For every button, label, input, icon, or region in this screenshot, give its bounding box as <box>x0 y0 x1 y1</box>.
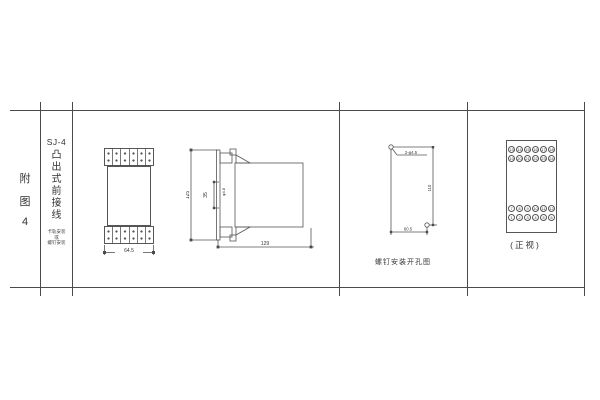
terminal-cell <box>121 227 129 243</box>
type-char: 前 <box>52 186 62 198</box>
drill-width-dim-label: 60.5 <box>404 227 413 232</box>
side-rail-dim-label: 35 <box>203 192 209 198</box>
terminal-number: 11 <box>540 205 547 212</box>
terminal-number: 2 <box>516 214 523 221</box>
model-label: SJ-4 <box>47 137 66 147</box>
drill-diagram-caption: 螺钉安装开孔图 <box>339 257 467 267</box>
terminal-number: 7 <box>508 205 515 212</box>
terminal-number: 22 <box>532 155 539 162</box>
mounting-hole-top-left <box>389 145 393 149</box>
appendix-char: 图 <box>20 193 31 209</box>
drawing-sheet: 附 图 4 SJ-4 凸 出 式 前 接 线 卡轨安装 或 螺钉安装 64.5 <box>0 0 600 400</box>
front-view-terminal-strip-bottom <box>104 226 154 244</box>
dimension-end <box>152 251 155 254</box>
terminal-cell <box>105 149 113 165</box>
terminal-number: 5 <box>540 214 547 221</box>
terminal-number: 13 <box>508 146 515 153</box>
terminal-number: 24 <box>548 155 555 162</box>
terminal-cell <box>130 227 138 243</box>
terminal-number: 20 <box>516 155 523 162</box>
type-char: 凸 <box>52 150 62 162</box>
terminal-cell <box>138 149 146 165</box>
terminal-row: 123456 <box>507 214 556 221</box>
table-rule-top <box>10 110 585 111</box>
side-hole-dim-label: φ4.8 <box>221 187 226 196</box>
terminal-number: 14 <box>516 146 523 153</box>
drill-holes-label: 2-φ4.5 <box>405 150 418 155</box>
terminal-row: 789101112 <box>507 205 556 212</box>
terminal-number: 15 <box>524 146 531 153</box>
terminal-number: 16 <box>532 146 539 153</box>
terminal-cell <box>121 149 129 165</box>
drilling-diagram: 2-φ4.5 110 60.5 <box>381 140 441 240</box>
terminal-number: 17 <box>540 146 547 153</box>
type-char: 出 <box>52 162 62 174</box>
terminal-view-caption: (正视) <box>467 239 584 251</box>
table-rule-col2 <box>72 102 73 296</box>
side-height-dim-label: 125 <box>186 191 191 200</box>
terminal-number: 9 <box>524 205 531 212</box>
terminal-cell <box>138 227 146 243</box>
terminal-top-block: 131415161718 192021222324 <box>507 144 556 162</box>
table-rule-bottom <box>10 287 585 288</box>
terminal-number: 8 <box>516 205 523 212</box>
dimension-end <box>103 251 106 254</box>
front-view-terminal-strip-top <box>104 148 154 166</box>
terminal-row: 192021222324 <box>507 155 556 162</box>
table-rule-col4 <box>467 102 468 296</box>
terminal-bottom-block: 789101112 123456 <box>507 203 556 221</box>
terminal-cell <box>146 149 153 165</box>
mounting-note-line: 卡轨安装 <box>48 229 66 235</box>
wiring-type-label: 凸 出 式 前 接 线 <box>52 150 62 222</box>
terminal-cell <box>113 227 121 243</box>
appendix-char: 4 <box>22 216 28 228</box>
terminal-number: 21 <box>524 155 531 162</box>
table-rule-right <box>584 102 585 296</box>
terminal-cell <box>105 227 113 243</box>
mounting-note: 卡轨安装 或 螺钉安装 <box>48 229 66 246</box>
type-char: 接 <box>52 198 62 210</box>
terminal-number: 6 <box>548 214 555 221</box>
terminal-cell <box>146 227 153 243</box>
front-width-dim-label: 64.5 <box>115 248 143 254</box>
side-view-drawing: 125 35 φ4.8 129 <box>186 128 318 260</box>
terminal-number: 3 <box>524 214 531 221</box>
terminal-number: 18 <box>548 146 555 153</box>
type-char: 式 <box>52 174 62 186</box>
drill-height-dim-label: 110 <box>427 184 432 191</box>
mounting-hole-bottom-right <box>425 223 429 227</box>
terminal-number: 4 <box>532 214 539 221</box>
terminal-number: 12 <box>548 205 555 212</box>
appendix-index-column: 附 图 4 <box>10 111 40 287</box>
terminal-number: 10 <box>532 205 539 212</box>
side-view-outline <box>191 149 314 247</box>
terminal-row: 131415161718 <box>507 146 556 153</box>
terminal-number: 23 <box>540 155 547 162</box>
type-char: 线 <box>52 210 62 222</box>
terminal-cell <box>130 149 138 165</box>
side-depth-dim-label: 129 <box>261 241 270 247</box>
terminal-layout-box: 131415161718 192021222324 789101112 1234… <box>506 140 557 233</box>
terminal-number: 1 <box>508 214 515 221</box>
appendix-char: 附 <box>20 170 31 186</box>
terminal-cell <box>113 149 121 165</box>
mounting-note-line: 螺钉安装 <box>48 240 66 246</box>
front-view-body <box>107 166 151 226</box>
title-column: SJ-4 凸 出 式 前 接 线 卡轨安装 或 螺钉安装 <box>41 111 72 287</box>
terminal-number: 19 <box>508 155 515 162</box>
